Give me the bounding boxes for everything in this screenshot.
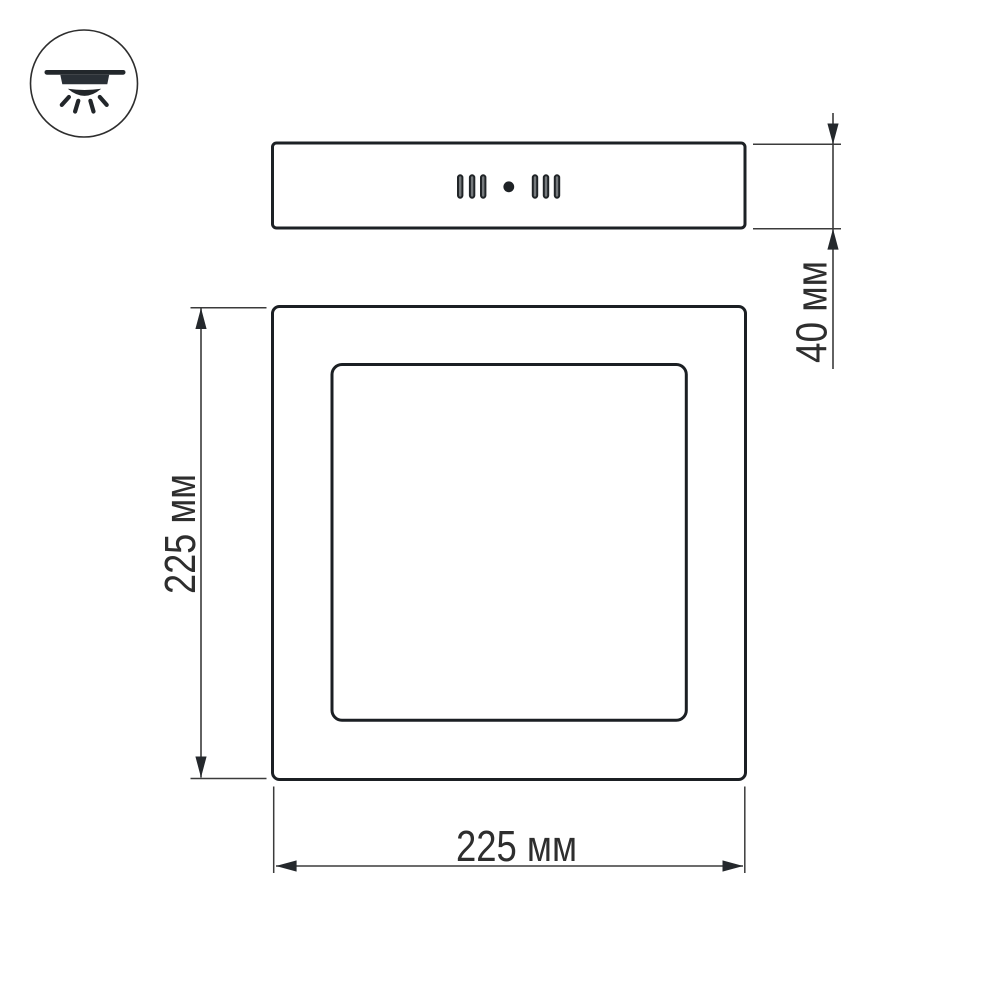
svg-text:225 мм: 225 мм bbox=[456, 822, 577, 871]
svg-text:40 мм: 40 мм bbox=[788, 261, 837, 363]
svg-text:225 мм: 225 мм bbox=[156, 474, 205, 594]
